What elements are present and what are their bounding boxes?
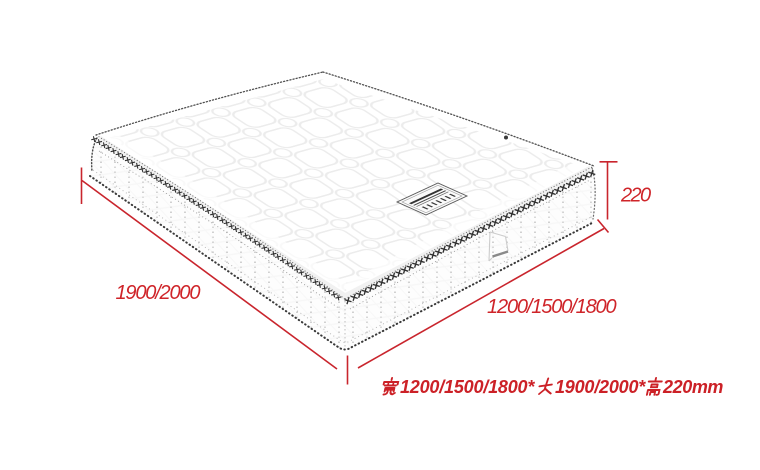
svg-text:1900/2000: 1900/2000	[116, 282, 201, 304]
svg-text:1200/1500/1800*: 1200/1500/1800*	[400, 377, 535, 397]
svg-text:1900/2000*: 1900/2000*	[555, 377, 646, 397]
svg-text:1200/1500/1800: 1200/1500/1800	[487, 296, 617, 318]
svg-text:220: 220	[620, 185, 651, 207]
svg-text:220mm: 220mm	[662, 377, 723, 397]
